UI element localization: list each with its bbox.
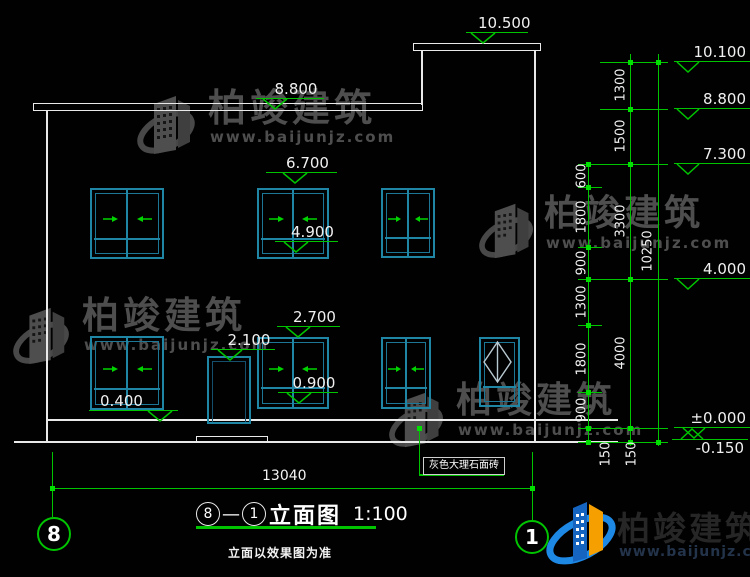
level-value: 6.700 [266, 155, 337, 172]
watermark: 柏竣建筑 www.baijunjz.com [478, 194, 731, 252]
level-value: 4.900 [275, 224, 338, 241]
watermark-brand-text: 柏竣建筑 [82, 296, 269, 336]
sash-arrow-icon [388, 365, 402, 373]
dim-dot [628, 107, 633, 112]
level-triangle-icon [676, 278, 700, 290]
title-bubble-1: 1 [242, 502, 266, 526]
dim-tick [578, 442, 668, 443]
elevation-drawing-canvas: 柏竣建筑 www.baijunjz.com 柏竣建筑 www.baijunjz.… [0, 0, 750, 577]
dim-dot [586, 440, 591, 445]
axis-bubble-8: 8 [37, 517, 71, 551]
dim-value-overall: 10250 [641, 230, 656, 271]
level-triangle-icon [285, 326, 311, 338]
right-wall [534, 50, 536, 443]
dim-value: 900 [575, 398, 590, 423]
dim-dot [586, 245, 591, 250]
level-value: 7.300 [674, 146, 750, 163]
leader-dot [417, 426, 422, 431]
dim-value: 150 [625, 442, 640, 467]
window [381, 188, 435, 258]
level-value: -0.150 [672, 440, 748, 457]
level-value: 10.500 [466, 15, 528, 32]
dim-value: 1300 [614, 68, 629, 101]
dim-dot [586, 390, 591, 395]
level-triangle-icon [262, 98, 288, 110]
dim-dot [586, 277, 591, 282]
ground-line [14, 441, 618, 443]
sash-arrow-icon [269, 215, 285, 223]
dim-line-bottom [53, 488, 533, 489]
title-dash: — [222, 504, 240, 525]
watermark-url-text: www.baijunjz.com [546, 234, 731, 252]
watermark-brand-text: 柏竣建筑 [544, 194, 731, 234]
dim-dot [656, 60, 661, 65]
sash-arrow-icon [103, 215, 119, 223]
dim-tick [600, 109, 668, 110]
level-value: 0.900 [278, 375, 338, 392]
level-marker: 0.400 [89, 393, 178, 422]
watermark-url-text: www.baijunjz.com [210, 128, 395, 146]
brand-logo: 柏竣建筑 www.baijunjz.com [543, 494, 623, 574]
level-triangle-icon [676, 61, 700, 73]
sash-arrow-icon [136, 365, 152, 373]
level-marker: 10.100 [674, 44, 750, 73]
dim-dot [656, 440, 661, 445]
level-triangle-icon [283, 241, 309, 253]
dim-dot [628, 60, 633, 65]
brand-logo-icon [136, 90, 198, 158]
dim-value: 150 [599, 442, 614, 467]
level-value: 2.100 [211, 332, 275, 349]
brand-logo-icon [478, 198, 536, 262]
dim-dot [628, 426, 633, 431]
dim-value: 600 [575, 164, 590, 189]
sash-arrow-icon [410, 365, 424, 373]
dim-dot [586, 323, 591, 328]
diamond-mullion-icon [482, 340, 513, 384]
level-triangle-icon [217, 349, 243, 361]
door-step [196, 436, 268, 443]
dim-tick [578, 428, 668, 429]
watermark-url-text: www.baijunjz.com [458, 421, 643, 439]
material-note: 灰色大理石面砖 [423, 457, 505, 475]
level-marker: 10.500 [466, 15, 528, 44]
level-marker: 8.800 [674, 91, 750, 120]
dim-tick [578, 164, 668, 165]
sash-arrow-icon [136, 215, 152, 223]
dim-value: 1300 [575, 285, 590, 318]
dim-value: 4000 [614, 336, 629, 369]
level-triangle-icon [282, 172, 308, 184]
dim-value: 1800 [575, 342, 590, 375]
window [90, 188, 164, 259]
roof-coping [33, 103, 423, 111]
level-marker: 7.300 [674, 146, 750, 175]
dim-value-bottom: 13040 [262, 468, 307, 484]
dim-value: 1800 [575, 200, 590, 233]
title-scale: 1:100 [353, 503, 408, 525]
level-triangle-icon [470, 32, 496, 44]
level-triangle-icon [676, 108, 700, 120]
level-triangle-icon [147, 410, 173, 422]
dim-dot [530, 486, 535, 491]
dim-chain-line [630, 54, 631, 446]
level-value: 2.700 [277, 309, 340, 326]
stair-tower-coping [413, 43, 541, 51]
dim-value: 1500 [614, 119, 629, 152]
level-triangle-icon [676, 163, 700, 175]
level-marker: 4.900 [275, 224, 338, 253]
level-value: 10.100 [674, 44, 750, 61]
sash-arrow-icon [269, 365, 285, 373]
dim-dot [50, 486, 55, 491]
level-triangle-icon [286, 392, 312, 404]
window [381, 337, 431, 409]
title-bubble-8: 8 [196, 502, 220, 526]
brand-logo-icon [12, 302, 72, 368]
dim-dot [628, 162, 633, 167]
dim-value: 900 [575, 251, 590, 276]
sash-arrow-icon [103, 365, 119, 373]
level-marker: 2.100 [211, 332, 275, 361]
level-marker: 4.000 [674, 261, 750, 290]
diamond-window [479, 337, 520, 407]
level-marker: 8.800 [256, 81, 324, 110]
level-value: 8.800 [674, 91, 750, 108]
entry-door [207, 356, 251, 424]
brand-logo-icon [543, 494, 623, 570]
dim-value: 3300 [614, 204, 629, 237]
level-marker: 2.700 [277, 309, 340, 338]
sash-arrow-icon [414, 215, 428, 223]
brand-logo-text: 柏竣建筑 [617, 502, 750, 550]
level-value: 0.400 [89, 393, 178, 410]
dim-tick [578, 279, 668, 280]
drawing-note: 立面以效果图为准 [228, 544, 332, 561]
level-marker: 0.900 [278, 375, 338, 404]
left-wall [46, 110, 48, 443]
title-underline [196, 526, 376, 529]
level-value: 4.000 [674, 261, 750, 278]
tower-left-wall [421, 50, 423, 105]
sash-arrow-icon [301, 365, 317, 373]
level-marker: -0.150 [672, 429, 748, 457]
dim-chain-line [658, 54, 659, 446]
dim-dot [586, 426, 591, 431]
brand-logo-url: www.baijunjz.com [619, 544, 750, 560]
level-marker: 6.700 [266, 155, 337, 184]
dim-dot [628, 277, 633, 282]
level-value: 8.800 [256, 81, 324, 98]
leader-line [419, 428, 420, 474]
dim-extension-line [52, 452, 53, 517]
sash-arrow-icon [388, 215, 402, 223]
level-value: ±0.000 [674, 410, 750, 427]
